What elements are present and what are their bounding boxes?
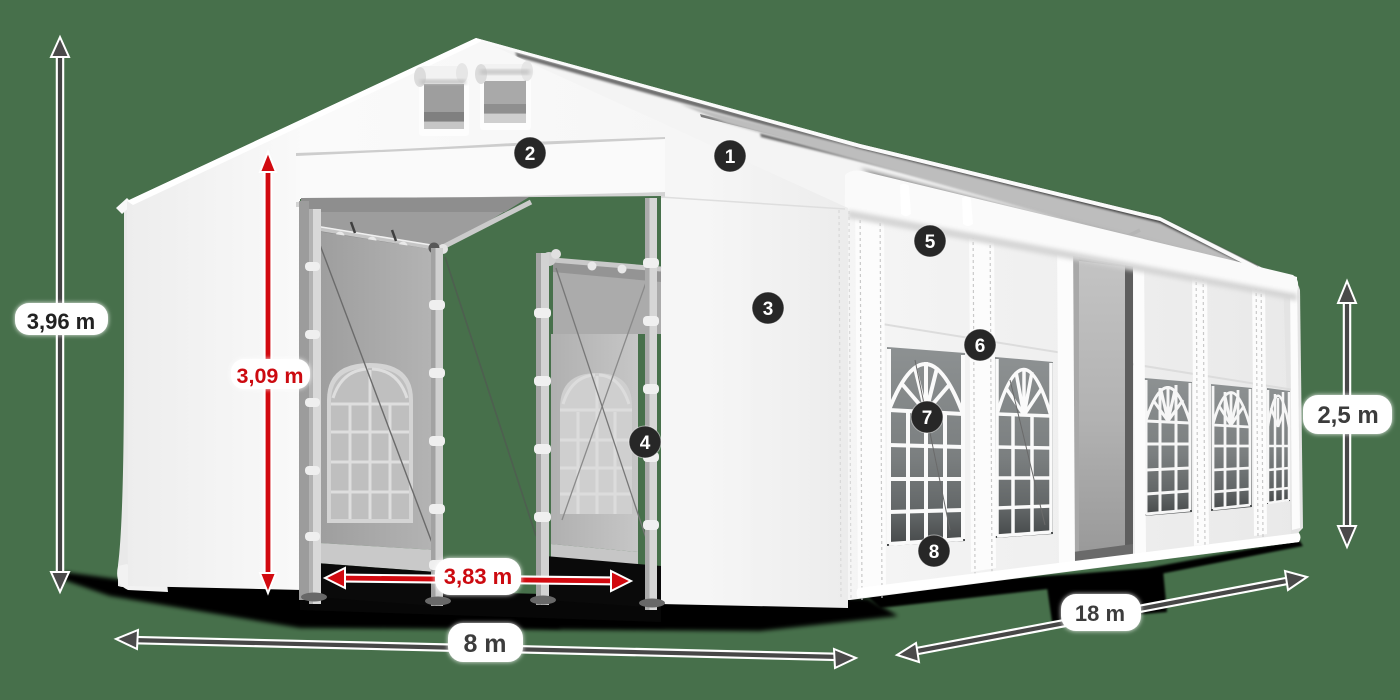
svg-text:2: 2 [525, 144, 536, 165]
svg-text:8 m: 8 m [463, 630, 506, 658]
svg-text:4: 4 [640, 433, 651, 454]
svg-text:3,83 m: 3,83 m [444, 564, 513, 589]
svg-text:1: 1 [725, 147, 736, 168]
svg-text:18 m: 18 m [1075, 601, 1125, 626]
svg-text:3: 3 [763, 299, 774, 320]
svg-text:3,09 m: 3,09 m [237, 364, 304, 388]
svg-text:8: 8 [929, 542, 940, 563]
svg-text:2,5 m: 2,5 m [1317, 402, 1378, 429]
svg-text:5: 5 [925, 232, 936, 253]
svg-text:7: 7 [922, 408, 933, 429]
svg-text:6: 6 [975, 336, 986, 357]
svg-text:3,96 m: 3,96 m [27, 309, 96, 334]
